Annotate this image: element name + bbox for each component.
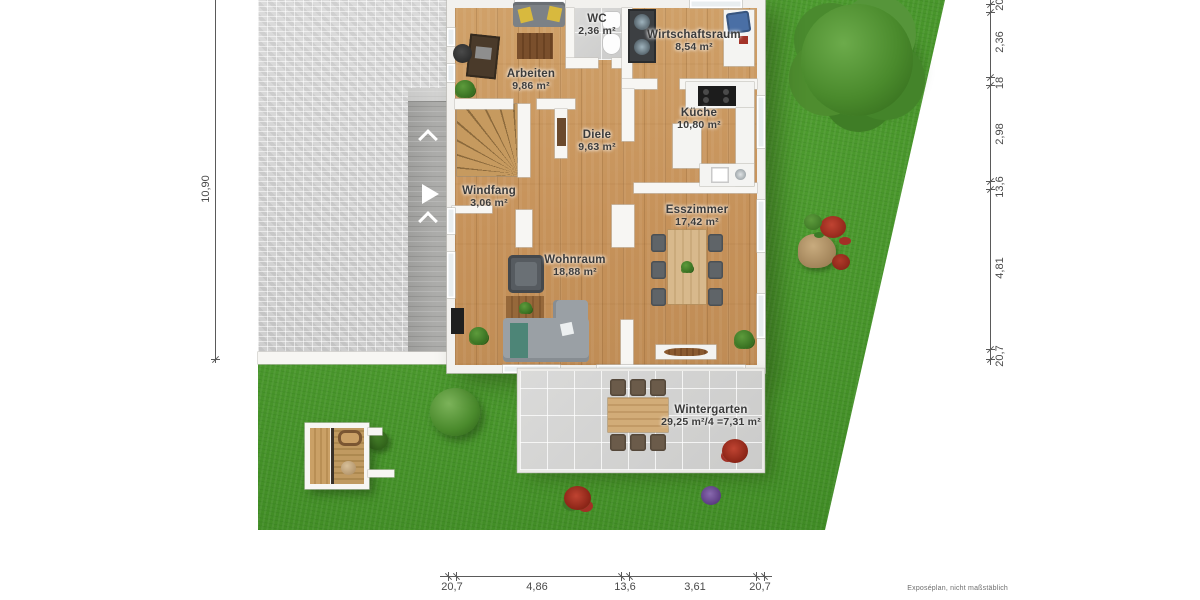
dining-chair xyxy=(708,234,723,252)
cooktop xyxy=(698,86,736,106)
window xyxy=(447,252,455,298)
room-area: 18,88 m² xyxy=(544,266,605,278)
room-name: Wohnraum xyxy=(544,254,605,266)
room-label-windfang: Windfang 3,06 m² xyxy=(462,185,516,209)
washer-drum xyxy=(634,14,650,30)
room-name: Arbeiten xyxy=(507,68,555,80)
armchair xyxy=(508,255,544,293)
dimension-label: 13,6 xyxy=(614,581,635,593)
wall xyxy=(537,99,575,109)
dimension-label: 20,7 xyxy=(994,345,1006,366)
shed-bench xyxy=(310,428,330,484)
entry-door xyxy=(447,208,455,234)
bush-icon xyxy=(430,388,480,436)
dimension-label: 20,7 xyxy=(441,581,462,593)
round-sink xyxy=(735,169,746,180)
room-name: Wintergarten xyxy=(661,404,761,416)
dimension-line-bottom xyxy=(440,576,772,577)
plant-icon xyxy=(469,327,488,345)
wall xyxy=(622,79,657,89)
burner-icon xyxy=(703,97,709,103)
dimension-tick xyxy=(629,572,630,581)
room-name: Windfang xyxy=(462,185,516,197)
room-area: 2,36 m² xyxy=(578,25,616,37)
walkway-arrow2-icon xyxy=(418,211,438,231)
dimension-label: 2,98 xyxy=(994,123,1006,144)
dining-chair xyxy=(708,288,723,306)
dimension-label: 13,6 xyxy=(994,176,1006,197)
sofa-blanket xyxy=(510,323,528,358)
plant-icon xyxy=(455,80,475,98)
room-label-esszimmer: Esszimmer 17,42 m² xyxy=(666,204,729,228)
kitchen-sink xyxy=(711,167,729,183)
room-label-wirtschaftsraum: Wirtschaftsraum 8,54 m² xyxy=(647,29,741,53)
dimension-label: 18 xyxy=(994,77,1006,89)
outdoor-chair xyxy=(610,434,626,451)
room-area: 29,25 m²/4 =7,31 m² xyxy=(661,416,761,428)
room-label-wohnraum: Wohnraum 18,88 m² xyxy=(544,254,605,278)
dining-chair xyxy=(651,261,666,279)
garden-shed xyxy=(305,423,369,489)
wall xyxy=(621,320,633,365)
flower-red-terrace-icon xyxy=(722,439,748,463)
staircase xyxy=(457,104,520,176)
dimension-tick xyxy=(448,572,449,581)
room-name: Küche xyxy=(677,107,721,119)
outdoor-chair xyxy=(610,379,626,396)
dimension-tick xyxy=(756,572,757,581)
wall xyxy=(518,104,530,177)
room-label-arbeiten: Arbeiten 9,86 m² xyxy=(507,68,555,92)
shed-stool xyxy=(341,461,356,475)
room-area: 3,06 m² xyxy=(462,197,516,209)
room-area: 8,54 m² xyxy=(647,41,741,53)
armchair-cushion xyxy=(515,262,537,286)
room-label-wc: WC 2,36 m² xyxy=(578,13,616,37)
dining-chair xyxy=(651,288,666,306)
room-area: 9,63 m² xyxy=(578,141,616,153)
flower-red-icon xyxy=(820,216,846,238)
shed-tub xyxy=(338,430,362,446)
flower-red-lawn-icon xyxy=(564,486,591,510)
dimension-tick xyxy=(764,572,765,581)
centerpiece-icon xyxy=(681,261,693,273)
sofa-main xyxy=(503,318,589,362)
dimension-label: 4,81 xyxy=(994,257,1006,278)
outdoor-table xyxy=(608,398,668,432)
plan-disclaimer: Exposéplan, nicht maßstäblich xyxy=(907,585,1008,592)
dimension-line-left xyxy=(215,0,216,363)
window xyxy=(757,200,765,252)
dimension-label: 3,61 xyxy=(684,581,705,593)
burner-icon xyxy=(703,89,709,95)
wc-toilet xyxy=(603,34,620,54)
dimension-tick xyxy=(986,12,995,13)
floor-plan-scene: Arbeiten 9,86 m² WC 2,36 m² Wirtschaftsr… xyxy=(0,0,1200,600)
room-name: Wirtschaftsraum xyxy=(647,29,741,41)
flower-purple-icon xyxy=(701,486,721,505)
room-area: 10,80 m² xyxy=(677,119,721,131)
wall xyxy=(455,99,513,109)
flower-red2-icon xyxy=(832,254,850,270)
room-label-kueche: Küche 10,80 m² xyxy=(677,107,721,131)
pillow-icon xyxy=(560,322,574,336)
shed-stub-bottom xyxy=(368,470,394,477)
dimension-tick xyxy=(456,572,457,581)
flower-green-icon xyxy=(804,214,822,230)
table-plant-icon xyxy=(519,302,532,314)
room-name: Esszimmer xyxy=(666,204,729,216)
room-area: 17,42 m² xyxy=(666,216,729,228)
room-area: 9,86 m² xyxy=(507,80,555,92)
walkway-step-edge xyxy=(408,88,447,101)
laptop xyxy=(475,46,492,60)
window xyxy=(690,0,742,8)
dimension-label-left-total: 10,90 xyxy=(200,175,212,203)
wall xyxy=(622,89,634,141)
wall xyxy=(566,58,598,68)
coffee-table-arbeiten xyxy=(517,33,553,59)
dimension-label: 2,36 xyxy=(994,31,1006,52)
entrance-arrow-icon xyxy=(422,184,439,204)
room-name: Diele xyxy=(578,129,616,141)
outdoor-chair xyxy=(630,434,646,451)
dimension-label: 20,7 xyxy=(749,581,770,593)
entrance-walkway xyxy=(408,88,447,362)
hall-console xyxy=(557,118,566,146)
window xyxy=(757,96,765,148)
plant-icon xyxy=(734,330,754,349)
wall xyxy=(612,205,634,247)
room-label-diele: Diele 9,63 m² xyxy=(578,129,616,153)
wall xyxy=(516,210,532,247)
sideboard xyxy=(656,345,716,359)
wooden-boat-bowl xyxy=(664,348,708,356)
outdoor-chair xyxy=(650,434,666,451)
window xyxy=(757,294,765,338)
outdoor-chair xyxy=(630,379,646,396)
dimension-label: 4,86 xyxy=(526,581,547,593)
dimension-tick xyxy=(211,359,220,360)
dimension-tick xyxy=(621,572,622,581)
window xyxy=(447,64,455,82)
pillow-icon xyxy=(547,6,563,22)
dining-table xyxy=(668,230,706,304)
courtyard-wall xyxy=(258,352,447,364)
burner-icon xyxy=(723,89,729,95)
sofa-arbeiten xyxy=(513,2,565,27)
dining-chair xyxy=(708,261,723,279)
dining-chair xyxy=(651,234,666,252)
walkway-arrow-icon xyxy=(418,129,438,149)
rock-icon xyxy=(798,234,836,268)
tree-icon xyxy=(801,4,913,116)
pillow-icon xyxy=(517,7,533,24)
dimension-label: 20,7 xyxy=(994,0,1006,11)
room-label-wintergarten: Wintergarten 29,25 m²/4 =7,31 m² xyxy=(661,404,761,428)
tv xyxy=(451,308,464,334)
shed-stub-top xyxy=(368,428,382,435)
office-chair xyxy=(453,44,472,63)
outdoor-chair xyxy=(650,379,666,396)
window xyxy=(447,28,455,46)
burner-icon xyxy=(723,97,729,103)
room-name: WC xyxy=(578,13,616,25)
